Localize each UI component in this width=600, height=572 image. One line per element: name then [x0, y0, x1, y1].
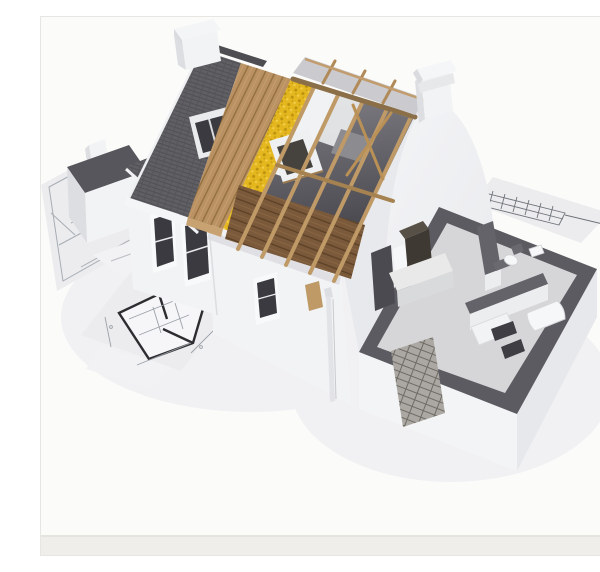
front-window: [253, 272, 280, 325]
floor-edge-line: [41, 535, 600, 537]
architectural-render-image: [40, 16, 600, 556]
render-scene: [41, 17, 600, 556]
